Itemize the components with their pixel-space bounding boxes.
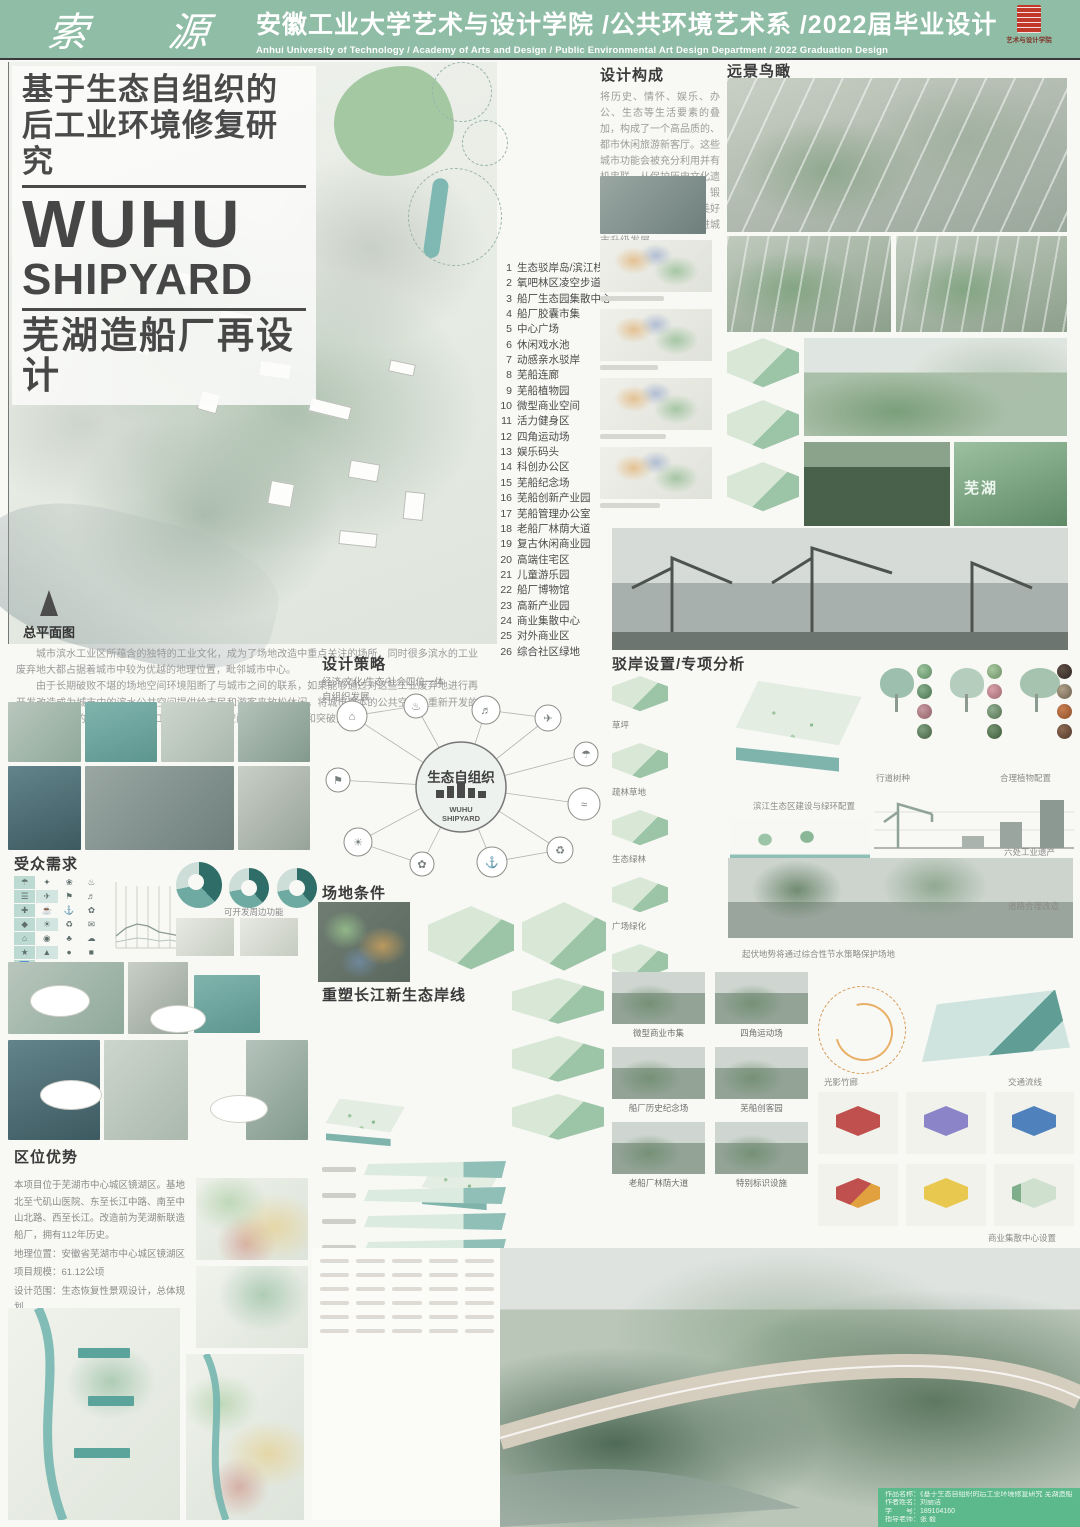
plant-thumb bbox=[465, 1256, 494, 1263]
site-photo bbox=[85, 702, 158, 762]
plant-thumb bbox=[392, 1284, 421, 1291]
legend-item: 11活力健身区 bbox=[498, 414, 608, 429]
audience-caption: 可开发周边功能 bbox=[224, 906, 284, 918]
svg-text:✿: ✿ bbox=[417, 859, 426, 871]
building-block bbox=[388, 359, 416, 376]
analysis-diagram bbox=[600, 309, 712, 361]
header-title-en: Anhui University of Technology / Academy… bbox=[256, 45, 997, 56]
school-seal-icon bbox=[1017, 5, 1041, 33]
svg-text:♻: ♻ bbox=[555, 845, 565, 857]
audience-icon: ✉ bbox=[81, 918, 102, 931]
audience-icon: ☁ bbox=[81, 932, 102, 945]
analysis-diagram bbox=[600, 240, 712, 292]
plant-thumb bbox=[356, 1298, 385, 1305]
final-boardwalk-render bbox=[500, 1248, 1080, 1527]
audience-icon: ◆ bbox=[14, 918, 35, 931]
legend-item: 18老船厂林荫大道 bbox=[498, 522, 608, 537]
legend-item: 17芜船管理办公室 bbox=[498, 507, 608, 522]
svg-text:✈: ✈ bbox=[543, 713, 552, 725]
header-title-cn: 安徽工业大学艺术与设计学院 /公共环境艺术系 /2022届毕业设计 bbox=[256, 5, 997, 41]
section-title-reshape: 重塑长江新生态岸线 bbox=[322, 984, 466, 1005]
plant-thumb bbox=[320, 1256, 349, 1263]
vegetation-type-item: 疏林草地 bbox=[612, 743, 720, 798]
vegetation-type-item: 广场绿化 bbox=[612, 877, 720, 932]
plant-thumb bbox=[429, 1312, 458, 1319]
planting-group bbox=[1014, 660, 1074, 788]
legend-item: 23高新产业园 bbox=[498, 599, 608, 614]
street-trees-label: 行道树种 bbox=[876, 772, 910, 784]
vegetation-type-column: 草坪 疏林草地 生态绿林 广场绿化 湿地 bbox=[612, 676, 720, 1011]
legend-item: 20高端住宅区 bbox=[498, 553, 608, 568]
analysis-diagram bbox=[600, 378, 712, 430]
massing-diagram bbox=[994, 1092, 1074, 1154]
plant-thumb bbox=[320, 1326, 349, 1333]
header-divider bbox=[0, 58, 1080, 60]
planting-config-label: 合理植物配置 bbox=[1000, 772, 1051, 784]
title-en-1: WUHU bbox=[22, 193, 306, 257]
scene-render-caption: 芜船创客园 bbox=[715, 1102, 808, 1114]
city-map-small bbox=[186, 1354, 304, 1520]
river-path bbox=[8, 1308, 180, 1520]
building-block bbox=[403, 491, 426, 521]
site-axon-1 bbox=[428, 906, 514, 978]
massing-diagram-row bbox=[818, 1092, 1074, 1154]
plant-thumb bbox=[429, 1270, 458, 1277]
aerial-render-main bbox=[727, 78, 1067, 232]
plant-thumb bbox=[392, 1256, 421, 1263]
title-line-1: 基于生态自组织的 bbox=[22, 72, 306, 108]
section-title-site-condition: 场地条件 bbox=[322, 882, 386, 903]
audience-icon: ☀ bbox=[36, 918, 57, 931]
credit-line: 作品名称：《基于生态自组织的后工业环境修复研究 芜湖造船厂再设计》 bbox=[885, 1491, 1073, 1499]
plant-thumb bbox=[320, 1312, 349, 1319]
plant-thumb bbox=[320, 1270, 349, 1277]
site-photo bbox=[85, 766, 234, 850]
poster: 索 源 安徽工业大学艺术与设计学院 /公共环境艺术系 /2022届毕业设计 An… bbox=[0, 0, 1080, 1527]
plant-thumb bbox=[429, 1326, 458, 1333]
section-title-strategy: 设计策略 bbox=[322, 653, 386, 674]
vegetation-label: 草坪 bbox=[612, 719, 720, 731]
aerial-render-2 bbox=[727, 236, 891, 332]
audience-icon: ✚ bbox=[14, 904, 35, 917]
plant-thumb bbox=[429, 1284, 458, 1291]
svg-text:⚓: ⚓ bbox=[485, 856, 499, 869]
wuhu-sign-photo: 芜湖 bbox=[954, 442, 1067, 526]
legend-item: 22船厂博物馆 bbox=[498, 583, 608, 598]
audience-sketch bbox=[240, 918, 298, 956]
vegetation-label: 广场绿化 bbox=[612, 920, 720, 932]
plant-thumb bbox=[465, 1312, 494, 1319]
legend-item: 24商业集散中心 bbox=[498, 614, 608, 629]
credit-line: 作者姓名：刘丽洁 bbox=[885, 1499, 1073, 1507]
plant-thumb bbox=[429, 1256, 458, 1263]
site-photo bbox=[161, 702, 234, 762]
plant-thumb bbox=[392, 1270, 421, 1277]
terrain-caption: 起伏地势将通过综合性节水策略保护场地 bbox=[742, 948, 895, 960]
tree-silhouette-icon bbox=[1020, 668, 1060, 698]
site-photo bbox=[8, 702, 81, 762]
speech-bubble bbox=[40, 1080, 102, 1110]
legend-item: 8芜船连廊 bbox=[498, 368, 608, 383]
svg-text:⚑: ⚑ bbox=[333, 775, 343, 787]
location-paragraph: 本项目位于芜湖市中心城区镜湖区。基地北至弋矶山医院、东至长江中路、南至中山北路、… bbox=[14, 1178, 190, 1245]
plant-thumb bbox=[465, 1298, 494, 1305]
scene-render-caption: 老船厂林荫大道 bbox=[612, 1177, 705, 1189]
scene-render: 老船厂林荫大道 bbox=[612, 1122, 705, 1189]
riverside-eco-terrace-diagram bbox=[730, 676, 870, 798]
legend-item: 7动感亲水驳岸 bbox=[498, 353, 608, 368]
audience-icon: ✦ bbox=[36, 876, 57, 889]
audience-icon: ✿ bbox=[81, 904, 102, 917]
header-bar: 索 源 安徽工业大学艺术与设计学院 /公共环境艺术系 /2022届毕业设计 An… bbox=[0, 0, 1080, 58]
audience-icon: ♨ bbox=[81, 876, 102, 889]
traffic-flow-label: 交通流线 bbox=[1008, 1076, 1042, 1088]
park-render bbox=[804, 338, 1067, 436]
massing-diagram-row bbox=[818, 1164, 1074, 1226]
vegetation-type-item: 生态绿林 bbox=[612, 810, 720, 865]
vegetation-axon bbox=[612, 676, 668, 716]
vegetation-type-item: 草坪 bbox=[612, 676, 720, 731]
scene-render-image bbox=[715, 1047, 808, 1099]
plant-thumb bbox=[356, 1326, 385, 1333]
audience-icon: ☕ bbox=[36, 904, 57, 917]
master-plan-legend: 1生态驳岸岛/滨江栈道 2氧吧林区凌空步道 3船厂生态园集散中心 4船厂胶囊市集… bbox=[498, 261, 608, 660]
commercial-center-label: 商业集散中心设置 bbox=[988, 1232, 1056, 1244]
city-map-large bbox=[8, 1308, 180, 1520]
plant-thumb bbox=[392, 1312, 421, 1319]
shoreline-axon bbox=[512, 1094, 604, 1146]
audience-icon: ⌂ bbox=[14, 932, 35, 945]
legend-item: 1生态驳岸岛/滨江栈道 bbox=[498, 261, 608, 276]
walkway-photo bbox=[804, 442, 950, 526]
location-map bbox=[196, 1266, 308, 1348]
audience-line-chart bbox=[106, 876, 182, 958]
scene-render-image bbox=[715, 1122, 808, 1174]
plant-thumb bbox=[465, 1326, 494, 1333]
north-arrow-icon bbox=[40, 590, 58, 616]
street-renovation-photo bbox=[728, 858, 1073, 938]
credit-line: 学 号：189104160 bbox=[885, 1508, 1073, 1516]
plant-thumb bbox=[392, 1298, 421, 1305]
massing-diagram bbox=[994, 1164, 1074, 1226]
location-text: 本项目位于芜湖市中心城区镜湖区。基地北至弋矶山医院、东至长江中路、南至中山北路、… bbox=[14, 1176, 190, 1317]
location-line-2: 项目规模：61.12公顷 bbox=[14, 1265, 190, 1282]
scene-render: 特别标识设施 bbox=[715, 1122, 808, 1189]
plant-thumb bbox=[356, 1312, 385, 1319]
strategy-subtitle-1: 经济/文化/生态/社会四位一体 bbox=[322, 676, 444, 691]
scene-render-image bbox=[612, 1122, 705, 1174]
plant-thumb bbox=[392, 1326, 421, 1333]
legend-item: 9芜船植物园 bbox=[498, 384, 608, 399]
massing-diagram bbox=[906, 1164, 986, 1226]
plant-thumb bbox=[356, 1284, 385, 1291]
vegetation-label: 生态绿林 bbox=[612, 853, 720, 865]
north-indicator: 总平面图 bbox=[23, 590, 75, 641]
shoreline-terrace-diagram bbox=[322, 1096, 410, 1160]
massing-diagram bbox=[818, 1164, 898, 1226]
site-photo bbox=[238, 702, 311, 762]
site-axon-2 bbox=[522, 902, 606, 980]
bridge-axon-3 bbox=[727, 462, 799, 518]
section-title-location: 区位优势 bbox=[14, 1146, 78, 1167]
scene-render-image bbox=[612, 972, 705, 1024]
context-photo bbox=[246, 1040, 308, 1140]
scene-render-caption: 微型商业市集 bbox=[612, 1027, 705, 1039]
legend-item: 5中心广场 bbox=[498, 322, 608, 337]
site-photo bbox=[8, 766, 81, 850]
network-center-en-2: SHIPYARD bbox=[442, 814, 481, 823]
brand-calligraphy: 索 源 bbox=[45, 0, 246, 58]
analysis-diagram bbox=[600, 447, 712, 499]
scene-render-caption: 四角运动场 bbox=[715, 1027, 808, 1039]
title-en-2: SHIPYARD bbox=[22, 257, 306, 303]
audience-icon: ♬ bbox=[81, 890, 102, 903]
audience-icon: ◉ bbox=[36, 932, 57, 945]
plant-palette-panel bbox=[312, 1248, 502, 1520]
scene-render-image bbox=[715, 972, 808, 1024]
title-divider bbox=[22, 308, 306, 311]
scene-render-grid: 微型商业市集 四角运动场 船厂历史纪念场 芜船创客园 老船厂林荫大道 bbox=[612, 972, 808, 1189]
shoreline-axon bbox=[512, 978, 604, 1030]
shoreline-type-row bbox=[322, 1161, 506, 1178]
tree-silhouette-icon bbox=[880, 668, 914, 698]
legend-item: 25对外商业区 bbox=[498, 629, 608, 644]
plant-thumb bbox=[356, 1270, 385, 1277]
self-organization-network-diagram: ⌂♨♬ ✈☂≈ ♻⚓✿ ☀⚑ 生态自组织 WUHU SHIPYARD bbox=[314, 690, 608, 884]
location-line-1: 地理位置：安徽省芜湖市中心城区镜湖区 bbox=[14, 1247, 190, 1264]
school-seal-caption: 艺术与设计学院 bbox=[990, 34, 1068, 44]
vegetation-axon bbox=[612, 877, 668, 917]
svg-text:☀: ☀ bbox=[353, 837, 363, 849]
shoreline-axon bbox=[512, 1036, 604, 1088]
bridge-axon-2 bbox=[727, 400, 799, 456]
credit-line: 指导老师：张 毅 bbox=[885, 1516, 1073, 1524]
donut-chart bbox=[277, 868, 317, 908]
section-title-audience: 受众需求 bbox=[14, 853, 78, 874]
plant-thumb bbox=[320, 1298, 349, 1305]
legend-item: 16芜船创新产业园 bbox=[498, 491, 608, 506]
section-title-revetment: 驳岸设置/专项分析 bbox=[612, 653, 745, 674]
location-map bbox=[196, 1178, 308, 1260]
donut-chart bbox=[229, 868, 269, 908]
site-photo bbox=[238, 766, 311, 850]
school-seal: 艺术与设计学院 bbox=[990, 3, 1068, 44]
bridge-axon-1 bbox=[727, 338, 799, 394]
master-plan-label: 总平面图 bbox=[23, 622, 75, 641]
title-block: 基于生态自组织的 后工业环境修复研究 WUHU SHIPYARD 芜湖造船厂再设… bbox=[12, 66, 316, 405]
scene-render: 芜船创客园 bbox=[715, 1047, 808, 1114]
legend-item: 2氧吧林区凌空步道 bbox=[498, 276, 608, 291]
analysis-diagram-stack bbox=[600, 240, 712, 516]
planting-group bbox=[874, 660, 934, 788]
plant-thumb bbox=[429, 1298, 458, 1305]
audience-icon: ♣ bbox=[59, 932, 80, 945]
svg-text:≈: ≈ bbox=[581, 799, 587, 811]
scene-render-image bbox=[612, 1047, 705, 1099]
audience-icon: ♻ bbox=[59, 918, 80, 931]
intro-paragraph-1: 城市滨水工业区所蕴含的独特的工业文化，成为了场地改造中重点关注的场所，同时很多滨… bbox=[16, 647, 478, 679]
title-line-2: 后工业环境修复研究 bbox=[22, 108, 306, 180]
massing-diagram bbox=[818, 1092, 898, 1154]
legend-item: 3船厂生态园集散中心 bbox=[498, 292, 608, 307]
svg-text:♨: ♨ bbox=[411, 701, 421, 713]
legend-item: 4船厂胶囊市集 bbox=[498, 307, 608, 322]
audience-icon: ⚑ bbox=[59, 890, 80, 903]
audience-icon: ❀ bbox=[59, 876, 80, 889]
vegetation-axon bbox=[612, 810, 668, 850]
shoreline-type-row bbox=[322, 1187, 506, 1204]
map-label-chip bbox=[78, 1348, 130, 1358]
scene-render-caption: 特别标识设施 bbox=[715, 1177, 808, 1189]
svg-text:☂: ☂ bbox=[581, 749, 591, 761]
legend-item: 26综合社区绿地 bbox=[498, 645, 608, 660]
donut-chart bbox=[176, 862, 222, 908]
audience-icon: ☰ bbox=[14, 890, 35, 903]
svg-text:♬: ♬ bbox=[481, 705, 492, 717]
speech-bubble bbox=[210, 1095, 268, 1123]
heritage-label: 六处工业遗产 bbox=[1004, 846, 1055, 858]
legend-item: 15芜船纪念场 bbox=[498, 476, 608, 491]
speech-bubble bbox=[30, 985, 90, 1017]
plant-thumb bbox=[320, 1284, 349, 1291]
massing-diagram bbox=[906, 1092, 986, 1154]
wuhu-sign-text: 芜湖 bbox=[964, 477, 998, 498]
legend-item: 12四角运动场 bbox=[498, 430, 608, 445]
credits-block: 作品名称：《基于生态自组织的后工业环境修复研究 芜湖造船厂再设计》作者姓名：刘丽… bbox=[878, 1488, 1080, 1527]
audience-icon: ★ bbox=[14, 946, 35, 959]
bamboo-corridor-diagram bbox=[818, 986, 906, 1074]
audience-icon: ⚓ bbox=[59, 904, 80, 917]
shoreline-type-rows bbox=[322, 1152, 506, 1256]
speech-bubble bbox=[150, 1005, 206, 1033]
bamboo-corridor-label: 光影竹廊 bbox=[824, 1076, 858, 1088]
audience-icon-grid: ☂✦❀♨☰✈⚑♬✚☕⚓✿◆☀♻✉⌂◉♣☁★▲●■♿☺✖♠ bbox=[14, 876, 102, 973]
legend-item: 14科创办公区 bbox=[498, 460, 608, 475]
plant-thumb bbox=[465, 1284, 494, 1291]
industrial-crane-photo bbox=[612, 528, 1068, 650]
road-label: 道路合理改造 bbox=[1008, 900, 1059, 912]
locator-circle bbox=[432, 62, 492, 122]
locator-circle bbox=[408, 168, 502, 266]
legend-item: 21儿童游乐园 bbox=[498, 568, 608, 583]
title-subtitle: 芜湖造船厂再设计 bbox=[22, 316, 306, 397]
plant-thumb bbox=[465, 1270, 494, 1277]
audience-icon: ● bbox=[59, 946, 80, 959]
boardwalk-path bbox=[500, 1248, 1080, 1527]
network-center-en-1: WUHU bbox=[449, 805, 472, 814]
traffic-flow-diagram bbox=[922, 990, 1070, 1062]
legend-item: 6休闲戏水池 bbox=[498, 338, 608, 353]
site-photo-strip bbox=[8, 702, 310, 852]
riverside-eco-label: 滨江生态区建设与绿环配置 bbox=[734, 800, 874, 812]
tree-silhouette-icon bbox=[950, 668, 984, 698]
planting-group bbox=[944, 660, 1004, 788]
legend-item: 10微型商业空间 bbox=[498, 399, 608, 414]
map-label-chip bbox=[74, 1448, 130, 1458]
planting-configuration bbox=[874, 660, 1074, 788]
audience-icon: ✈ bbox=[36, 890, 57, 903]
site-satellite-map bbox=[318, 902, 410, 982]
scene-render-caption: 船厂历史纪念场 bbox=[612, 1102, 705, 1114]
vegetation-axon bbox=[612, 743, 668, 783]
river-path bbox=[186, 1354, 304, 1520]
legend-item: 19复古休闲商业园 bbox=[498, 537, 608, 552]
vegetation-label: 疏林草地 bbox=[612, 786, 720, 798]
plant-thumb bbox=[356, 1256, 385, 1263]
map-label-chip bbox=[88, 1396, 134, 1406]
aerial-render-3 bbox=[896, 236, 1067, 332]
audience-sketch bbox=[176, 918, 234, 956]
audience-icon: ▲ bbox=[36, 946, 57, 959]
audience-icon: ☂ bbox=[14, 876, 35, 889]
section-title-design-composition: 设计构成 bbox=[600, 64, 664, 85]
scene-render: 微型商业市集 bbox=[612, 972, 705, 1039]
shoreline-type-row bbox=[322, 1213, 506, 1230]
context-photo bbox=[104, 1040, 188, 1140]
locator-circle bbox=[462, 120, 508, 166]
scene-render: 船厂历史纪念场 bbox=[612, 1047, 705, 1114]
building-block bbox=[348, 460, 381, 483]
crane-silhouette-icon bbox=[612, 528, 1068, 650]
building-block bbox=[338, 530, 377, 548]
shipyard-photo bbox=[600, 176, 706, 234]
scene-render: 四角运动场 bbox=[715, 972, 808, 1039]
audience-icon: ■ bbox=[81, 946, 102, 959]
legend-item: 13娱乐码头 bbox=[498, 445, 608, 460]
building-block bbox=[267, 480, 295, 508]
svg-text:⌂: ⌂ bbox=[349, 711, 356, 723]
